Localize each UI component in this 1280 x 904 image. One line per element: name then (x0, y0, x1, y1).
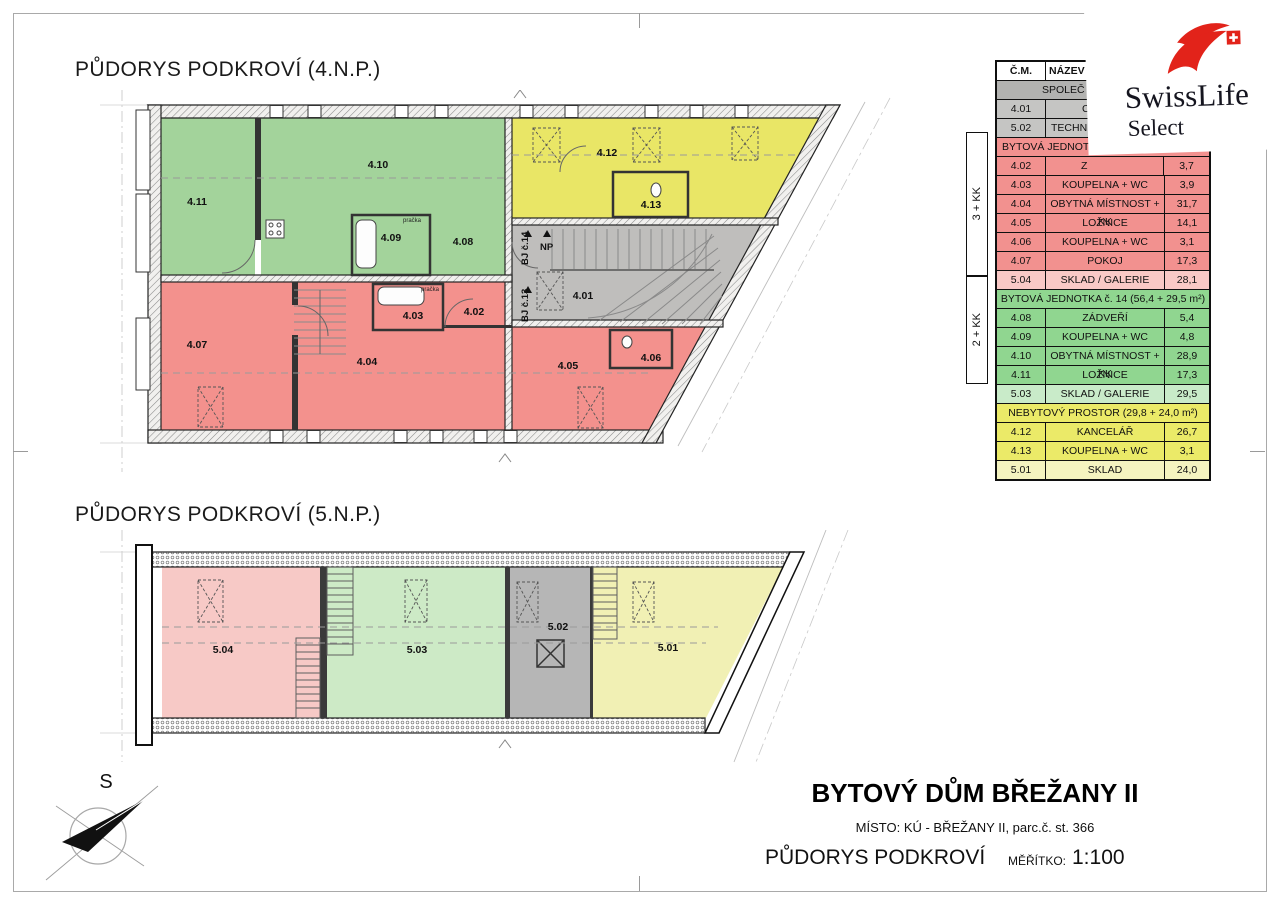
room-label-5-02: 5.02 (548, 621, 569, 633)
room-label-4-11: 4.11 (187, 196, 207, 208)
swisslife-logo: SwissLife Select (1084, 0, 1280, 155)
section-header-nonresidential: NEBYTOVÝ PROSTOR (29,8 + 24,0 m²) (997, 403, 1209, 422)
room-label-4-02: 4.02 (464, 306, 485, 318)
unit14-entry-label: BJ č.14 (520, 231, 531, 265)
table-row: 4.09 KOUPELNA + WC 4,8 (997, 327, 1209, 346)
fold-mark (13, 451, 28, 452)
fold-mark (639, 876, 640, 891)
north-arrow-icon: S (40, 772, 180, 882)
unit14-type-bracket: 2 + KK (966, 276, 988, 384)
unit13-type-bracket: 3 + KK (966, 132, 988, 276)
room-label-4-06: 4.06 (641, 352, 662, 364)
drawing-title: PŮDORYS PODKROVÍ (765, 846, 985, 870)
scale-value: 1:100 (1072, 846, 1125, 870)
table-row: 4.04 OBYTNÁ MÍSTNOST + KK 31,7 (997, 194, 1209, 213)
table-row: 4.06 KOUPELNA + WC 3,1 (997, 232, 1209, 251)
table-row: 4.02 Z 3,7 (997, 156, 1209, 175)
washer-label: pračka (421, 287, 440, 293)
room-label-4-12: 4.12 (597, 147, 618, 159)
plan5-title: PŮDORYS PODKROVÍ (5.N.P.) (75, 503, 381, 527)
room-label-4-04: 4.04 (357, 356, 378, 368)
fold-mark (1250, 451, 1265, 452)
floorplan-5np: 5.04 5.03 5.02 5.01 (100, 530, 910, 765)
project-location: MÍSTO: KÚ - BŘEŽANY II, parc.č. st. 366 (810, 820, 1140, 835)
room-label-4-08: 4.08 (453, 236, 474, 248)
table-row: 4.03 KOUPELNA + WC 3,9 (997, 175, 1209, 194)
plan4-title: PŮDORYS PODKROVÍ (4.N.P.) (75, 58, 381, 82)
table-row: 4.13 KOUPELNA + WC 3,1 (997, 441, 1209, 460)
room-label-4-09: 4.09 (381, 232, 402, 244)
room-label-5-01: 5.01 (658, 642, 679, 654)
table-row: 5.03 SKLAD / GALERIE 29,5 (997, 384, 1209, 403)
room-label-4-13: 4.13 (641, 199, 662, 211)
logo-brand-text: SwissLife (1124, 76, 1249, 116)
table-row: 5.01 SKLAD 24,0 (997, 460, 1209, 479)
fold-mark (639, 13, 640, 28)
room-label-4-01: 4.01 (573, 290, 594, 302)
unit14-type-label: 2 + KK (971, 313, 983, 346)
room-label-5-03: 5.03 (407, 644, 428, 656)
table-row: 4.08 ZÁDVEŘÍ 5,4 (997, 308, 1209, 327)
np-label: NP (540, 242, 554, 253)
project-title: BYTOVÝ DŮM BŘEŽANY II (810, 778, 1140, 809)
room-label-4-05: 4.05 (558, 360, 579, 372)
col-header-number: Č.M. (997, 62, 1046, 80)
unit13-entry-label: BJ č.13 (520, 289, 531, 322)
table-row: 4.11 LOŽNICE 17,3 (997, 365, 1209, 384)
unit13-type-label: 3 + KK (971, 187, 983, 220)
room-label-4-10: 4.10 (368, 159, 389, 171)
table-row: 4.12 KANCELÁŘ 26,7 (997, 422, 1209, 441)
table-row: 5.04 SKLAD / GALERIE 28,1 (997, 270, 1209, 289)
room-label-4-07: 4.07 (187, 339, 208, 351)
drawing-sheet: PŮDORYS PODKROVÍ (4.N.P.) PŮDORYS PODKRO… (0, 0, 1280, 904)
scale-label: MĚŘÍTKO: (1008, 854, 1066, 868)
compass-label: S (99, 772, 112, 793)
table-row: 4.05 LOŽNICE 14,1 (997, 213, 1209, 232)
table-row: 4.10 OBYTNÁ MÍSTNOST + KK 28,9 (997, 346, 1209, 365)
swisslife-flourish-icon (1150, 18, 1252, 81)
table-row: 4.07 POKOJ 17,3 (997, 251, 1209, 270)
washer-label: pračka (403, 218, 422, 224)
floorplan-4np: 4.11 4.10 4.09 4.08 4.12 4.13 4.01 4.07 … (100, 90, 910, 475)
section-header-unit14: BYTOVÁ JEDNOTKA č. 14 (56,4 + 29,5 m²) (997, 289, 1209, 308)
room-label-5-04: 5.04 (213, 644, 234, 656)
room-label-4-03: 4.03 (403, 310, 424, 322)
logo-sub-text: Select (1127, 114, 1184, 142)
